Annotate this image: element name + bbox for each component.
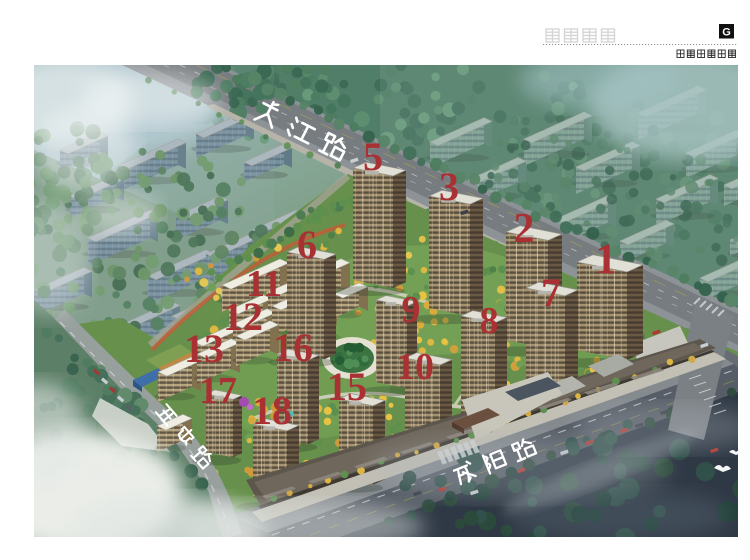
svg-text:9: 9: [402, 289, 421, 331]
svg-text:15: 15: [327, 364, 367, 409]
svg-text:6: 6: [297, 222, 317, 267]
svg-text:10: 10: [396, 346, 434, 388]
svg-text:17: 17: [199, 370, 237, 412]
svg-text:3: 3: [439, 164, 459, 209]
svg-text:1: 1: [595, 236, 617, 283]
svg-text:18: 18: [252, 388, 292, 433]
svg-text:5: 5: [363, 134, 383, 179]
svg-text:12: 12: [223, 294, 263, 339]
svg-text:2: 2: [514, 206, 535, 252]
svg-text:8: 8: [480, 300, 499, 342]
svg-text:G: G: [722, 27, 731, 39]
svg-text:16: 16: [273, 325, 313, 370]
svg-text:7: 7: [541, 270, 561, 315]
svg-text:13: 13: [184, 326, 224, 371]
